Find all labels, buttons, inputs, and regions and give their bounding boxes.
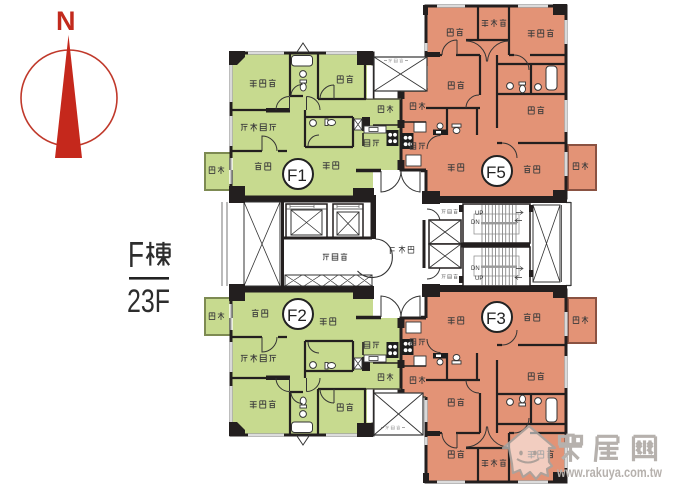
svg-text:DN: DN — [471, 266, 480, 272]
svg-text:F1: F1 — [287, 166, 307, 185]
svg-text:F3: F3 — [486, 309, 506, 328]
svg-text:F: F — [389, 246, 395, 257]
svg-text:UP: UP — [475, 276, 483, 282]
svg-text:N: N — [56, 6, 76, 36]
svg-text:F5: F5 — [486, 163, 506, 182]
svg-text:UP: UP — [475, 211, 483, 217]
svg-text:www.rakuya.com.tw: www.rakuya.com.tw — [556, 465, 662, 480]
svg-text:F: F — [128, 234, 144, 275]
svg-text:DN: DN — [471, 220, 480, 226]
svg-text:23F: 23F — [127, 283, 170, 319]
svg-text:F2: F2 — [287, 306, 307, 325]
